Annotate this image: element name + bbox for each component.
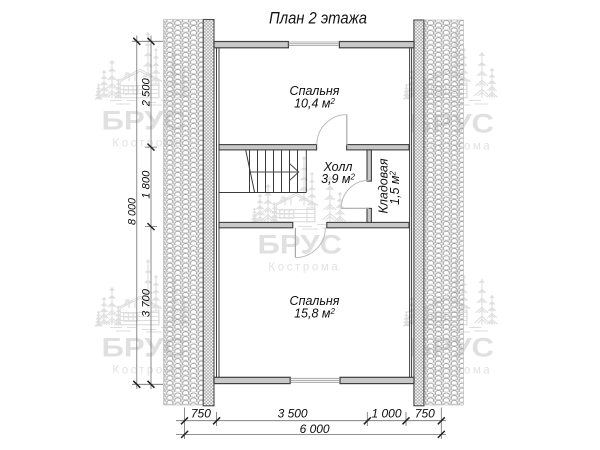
svg-text:6 000: 6 000: [300, 422, 330, 436]
svg-text:2 500: 2 500: [140, 78, 152, 108]
svg-text:750: 750: [415, 406, 435, 420]
svg-text:План 2 этажа: План 2 этажа: [269, 8, 367, 27]
svg-text:3,9 м2: 3,9 м2: [321, 172, 355, 186]
svg-text:1,5 м2: 1,5 м2: [388, 171, 402, 205]
svg-text:3 500: 3 500: [278, 406, 308, 420]
svg-text:750: 750: [191, 406, 211, 420]
svg-text:1 800: 1 800: [140, 170, 152, 199]
svg-text:10,4 м2: 10,4 м2: [294, 97, 335, 111]
svg-text:8 000: 8 000: [127, 198, 139, 225]
svg-text:15,8 м2: 15,8 м2: [294, 307, 335, 321]
svg-text:1 000: 1 000: [371, 406, 401, 420]
svg-text:3 700: 3 700: [140, 288, 152, 317]
